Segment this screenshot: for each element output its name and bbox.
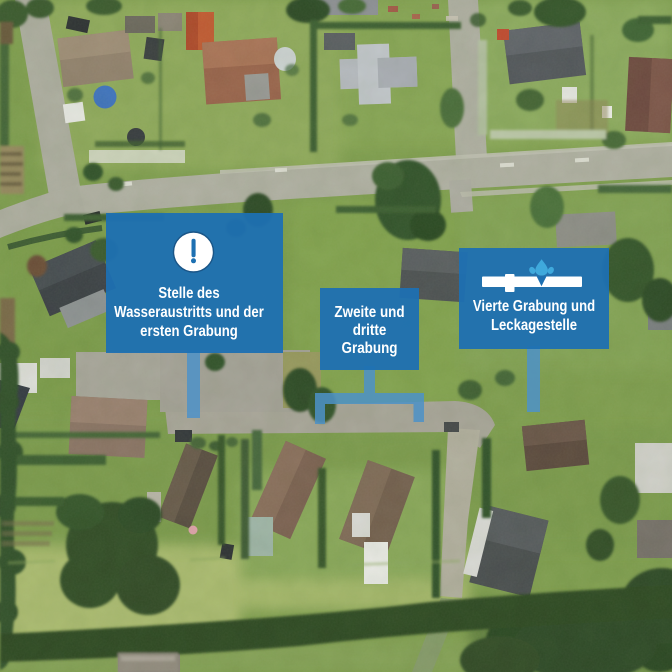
svg-text:Stelle des: Stelle des — [158, 285, 219, 302]
svg-text:Vierte Grabung und: Vierte Grabung und — [473, 298, 595, 315]
svg-text:dritte: dritte — [353, 322, 387, 339]
svg-text:Wasseraustritts und der: Wasseraustritts und der — [114, 304, 264, 321]
svg-text:Leckagestelle: Leckagestelle — [491, 317, 577, 334]
svg-text:Zweite und: Zweite und — [334, 304, 404, 321]
svg-text:Grabung: Grabung — [342, 340, 398, 357]
svg-text:ersten Grabung: ersten Grabung — [140, 323, 238, 340]
